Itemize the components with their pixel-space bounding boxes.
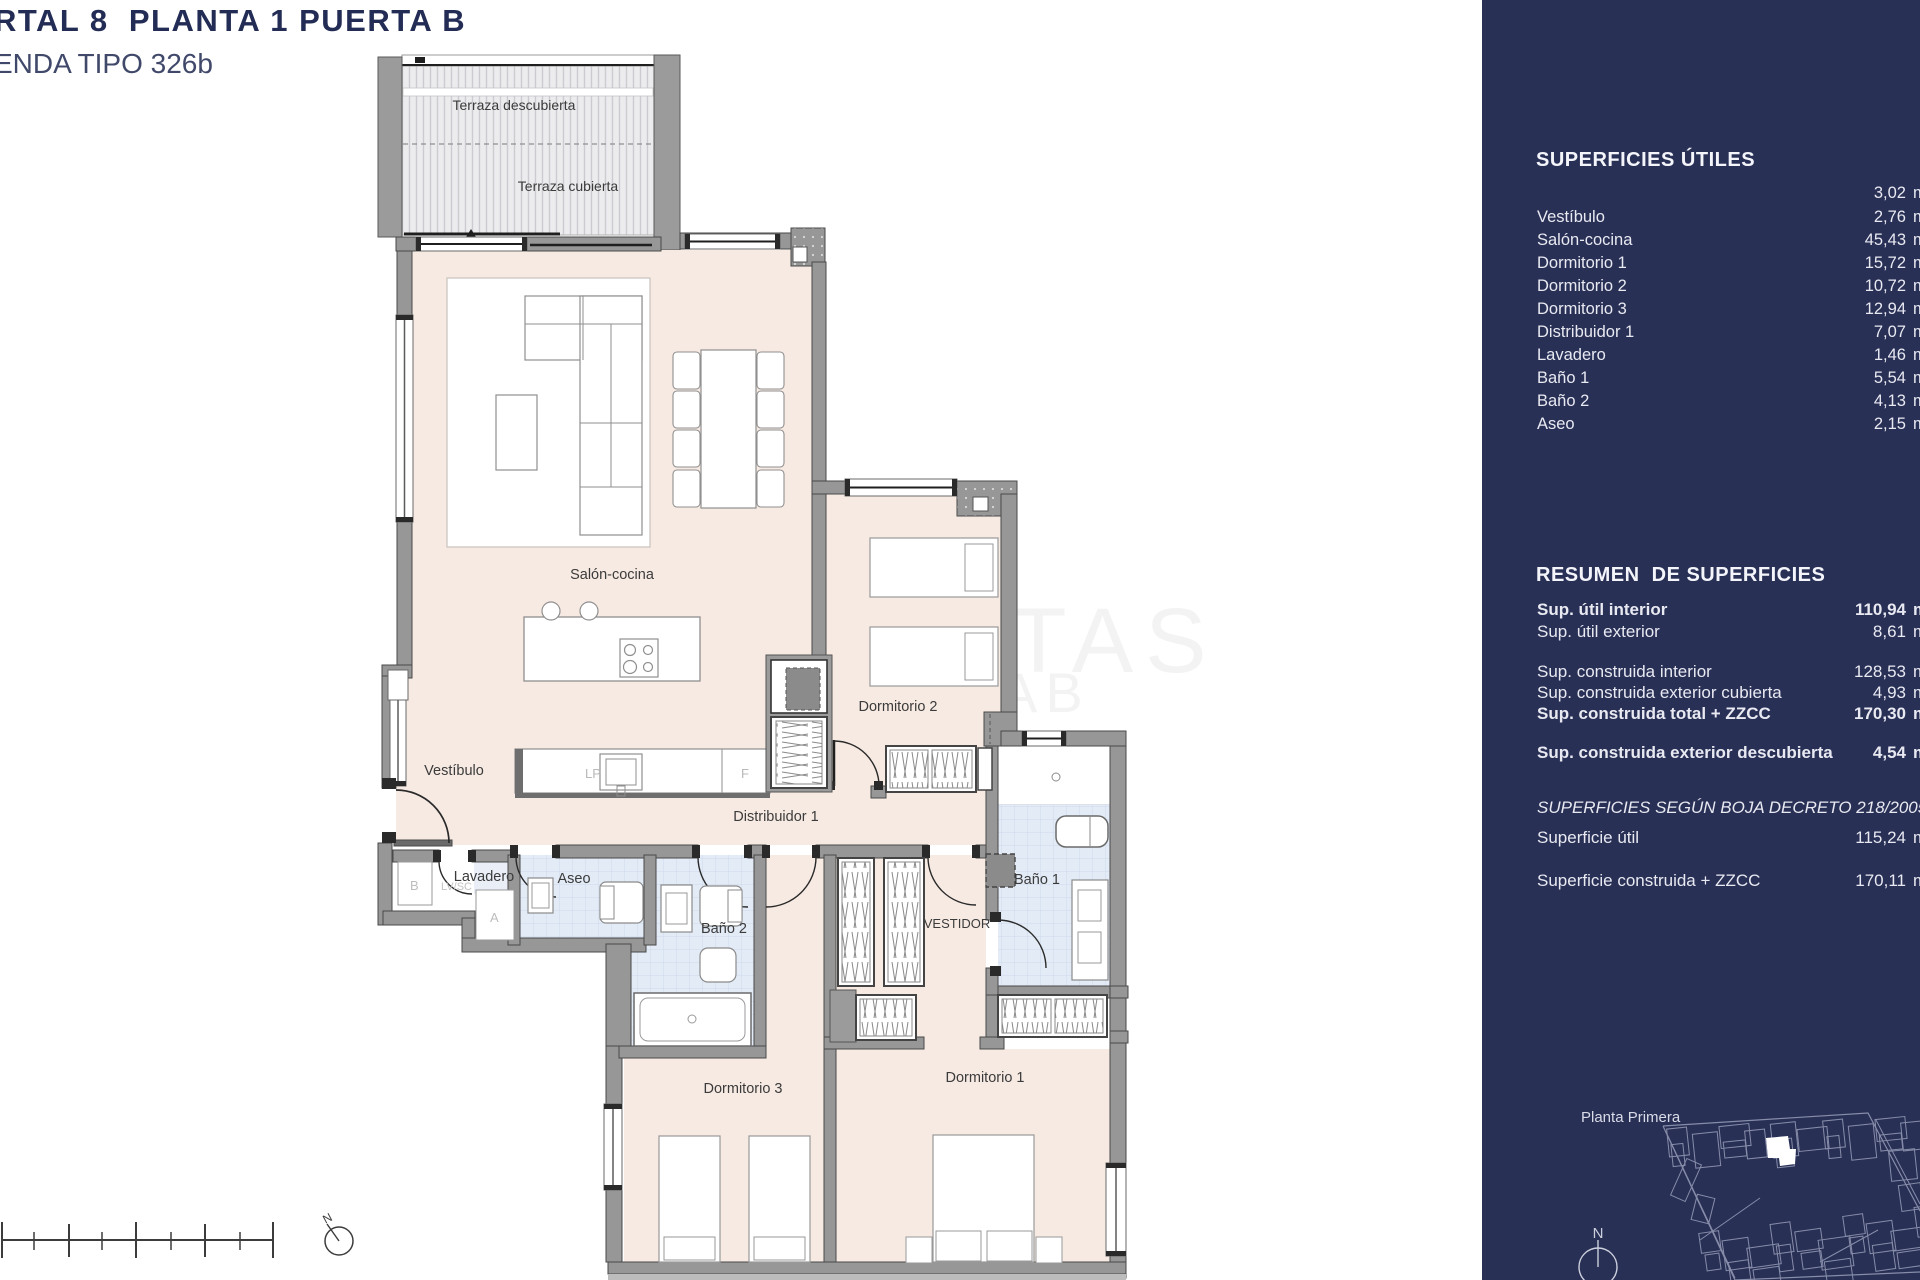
svg-text:170,11: 170,11 [1855,871,1906,890]
svg-text:Vestíbulo: Vestíbulo [424,763,484,779]
svg-text:128,53: 128,53 [1854,662,1906,681]
svg-text:m²: m² [1913,392,1920,410]
svg-text:m²: m² [1913,600,1920,619]
svg-text:m²: m² [1913,683,1920,702]
svg-text:170,30: 170,30 [1854,704,1906,723]
svg-text:Dormitorio 1: Dormitorio 1 [946,1070,1025,1086]
svg-text:F: F [741,766,749,781]
svg-text:N: N [1593,1225,1604,1242]
svg-text:45,43: 45,43 [1865,231,1906,249]
svg-text:Dormitorio 3: Dormitorio 3 [1537,300,1627,318]
svg-text:8,61: 8,61 [1873,622,1906,641]
svg-text:Distribuidor 1: Distribuidor 1 [1537,323,1634,341]
svg-text:ENDA TIPO 326b: ENDA TIPO 326b [0,48,213,79]
svg-text:m²: m² [1913,828,1920,847]
svg-text:Aseo: Aseo [1537,415,1575,433]
svg-text:LP: LP [585,766,601,781]
svg-text:Terraza descubierta: Terraza descubierta [453,97,576,113]
svg-text:Sup. útil exterior: Sup. útil exterior [1537,622,1660,641]
svg-text:m²: m² [1913,871,1920,890]
svg-text:Dormitorio 1: Dormitorio 1 [1537,254,1627,272]
svg-text:m²: m² [1913,184,1920,202]
svg-text:Lavadero: Lavadero [454,869,514,885]
svg-text:m²: m² [1913,300,1920,318]
svg-text:m²: m² [1913,346,1920,364]
svg-text:2,15: 2,15 [1874,415,1906,433]
svg-text:Sup. construida exterior cubie: Sup. construida exterior cubierta [1537,683,1782,702]
svg-text:Sup. construida exterior descu: Sup. construida exterior descubierta [1537,743,1833,762]
svg-text:5,54: 5,54 [1874,369,1906,387]
svg-text:110,94: 110,94 [1855,600,1907,619]
svg-text:m²: m² [1913,254,1920,272]
svg-text:Sup. construida interior: Sup. construida interior [1537,662,1712,681]
svg-text:m²: m² [1913,369,1920,387]
svg-text:Superficie útil: Superficie útil [1537,828,1639,847]
svg-text:Baño 2: Baño 2 [701,921,747,937]
svg-text:m²: m² [1913,323,1920,341]
svg-text:10,72: 10,72 [1865,277,1906,295]
svg-text:7,07: 7,07 [1874,323,1906,341]
svg-text:m²: m² [1913,415,1920,433]
svg-text:1,46: 1,46 [1874,346,1906,364]
svg-text:Dormitorio 2: Dormitorio 2 [859,699,938,715]
svg-text:Planta Primera: Planta Primera [1581,1109,1681,1126]
svg-text:m²: m² [1913,743,1920,762]
svg-text:Salón-cocina: Salón-cocina [570,567,655,583]
svg-text:Baño 2: Baño 2 [1537,392,1589,410]
svg-text:Dormitorio 2: Dormitorio 2 [1537,277,1627,295]
svg-text:m²: m² [1913,662,1920,681]
svg-text:Aseo: Aseo [557,871,590,887]
svg-text:SUPERFICIES SEGÚN BOJA DECRETO: SUPERFICIES SEGÚN BOJA DECRETO 218/2005 [1537,798,1920,817]
svg-text:2,76: 2,76 [1874,208,1906,226]
svg-text:Sup. construida total + ZZCC: Sup. construida total + ZZCC [1537,704,1771,723]
svg-text:m²: m² [1913,704,1920,723]
svg-text:Vestíbulo: Vestíbulo [1537,208,1605,226]
svg-text:Baño 1: Baño 1 [1537,369,1589,387]
svg-text:Dormitorio 3: Dormitorio 3 [704,1081,783,1097]
svg-text:m²: m² [1913,231,1920,249]
svg-text:VESTIDOR: VESTIDOR [924,916,990,931]
svg-text:RESUMEN DE SUPERFICIES: RESUMEN DE SUPERFICIES [1536,564,1825,586]
svg-text:Salón-cocina: Salón-cocina [1537,231,1633,249]
svg-text:m²: m² [1913,277,1920,295]
svg-text:Baño 1: Baño 1 [1014,872,1060,888]
svg-text:Terraza cubierta: Terraza cubierta [518,178,619,194]
svg-text:A: A [490,910,499,925]
svg-text:SUPERFICIES ÚTILES: SUPERFICIES ÚTILES [1536,147,1755,171]
svg-text:12,94: 12,94 [1865,300,1906,318]
svg-text:Sup. útil interior: Sup. útil interior [1537,600,1668,619]
svg-text:Lavadero: Lavadero [1537,346,1606,364]
svg-text:m²: m² [1913,208,1920,226]
svg-text:Superficie construida + ZZCC: Superficie construida + ZZCC [1537,871,1760,890]
svg-text:4,54: 4,54 [1873,743,1907,762]
svg-text:Distribuidor 1: Distribuidor 1 [733,809,818,825]
svg-text:4,13: 4,13 [1874,392,1906,410]
svg-text:m²: m² [1913,622,1920,641]
svg-text:4,93: 4,93 [1873,683,1906,702]
svg-text:B: B [410,878,419,893]
svg-text:115,24: 115,24 [1855,828,1906,847]
svg-text:3,02: 3,02 [1874,184,1906,202]
svg-text:15,72: 15,72 [1865,254,1906,272]
svg-text:RTAL 8 PLANTA 1 PUERTA B: RTAL 8 PLANTA 1 PUERTA B [0,3,466,38]
